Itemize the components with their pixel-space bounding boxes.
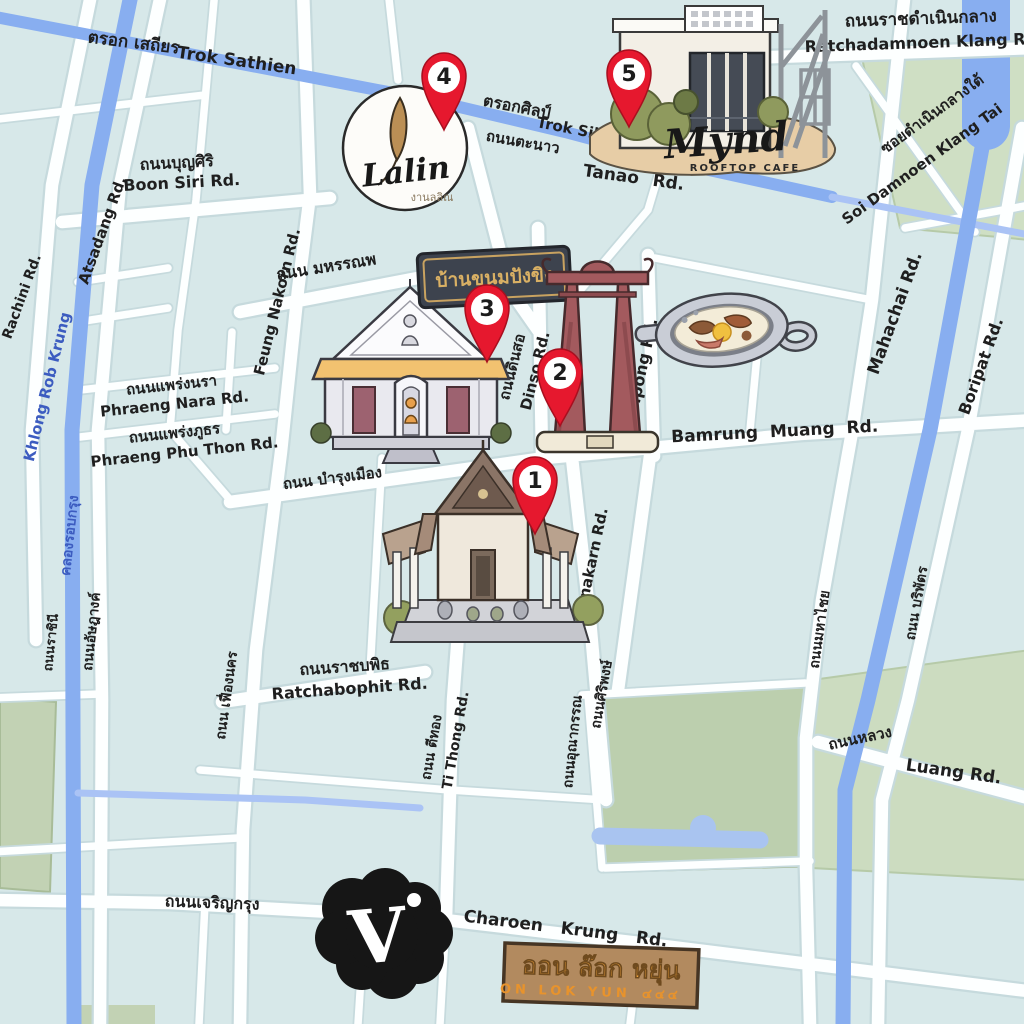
on-lok-yun-sign: ออน ล๊อก หยุ่น ON LOK YUN ๔๔๔ [500,943,699,1008]
mynd-logo-subtitle: ROOFTOP CAFE [690,163,800,174]
v-logo-dot [407,893,421,907]
pin-2-number[interactable]: 2 [552,361,567,386]
pin-3-number[interactable]: 3 [479,297,494,322]
map-canvas: ตรอก เสถียร Trok Sathien ถนนราชดำเนินกลา… [0,0,1024,1024]
pin-1-number[interactable]: 1 [527,469,542,494]
park-pond [600,836,760,840]
lalin-logo-subtitle: งานลลิณ [411,191,454,204]
pin-5-number[interactable]: 5 [621,62,636,87]
illustrated-map: ตรอก เสถียร Trok Sathien ถนนราชดำเนินกลา… [0,0,1024,1024]
mynd-logo-text: Mynd [660,113,790,169]
pin-4-number[interactable]: 4 [436,65,451,90]
v-logo-letter: V [344,892,411,983]
on-lok-yun-sign-number: ๔๔๔ [642,987,681,1003]
